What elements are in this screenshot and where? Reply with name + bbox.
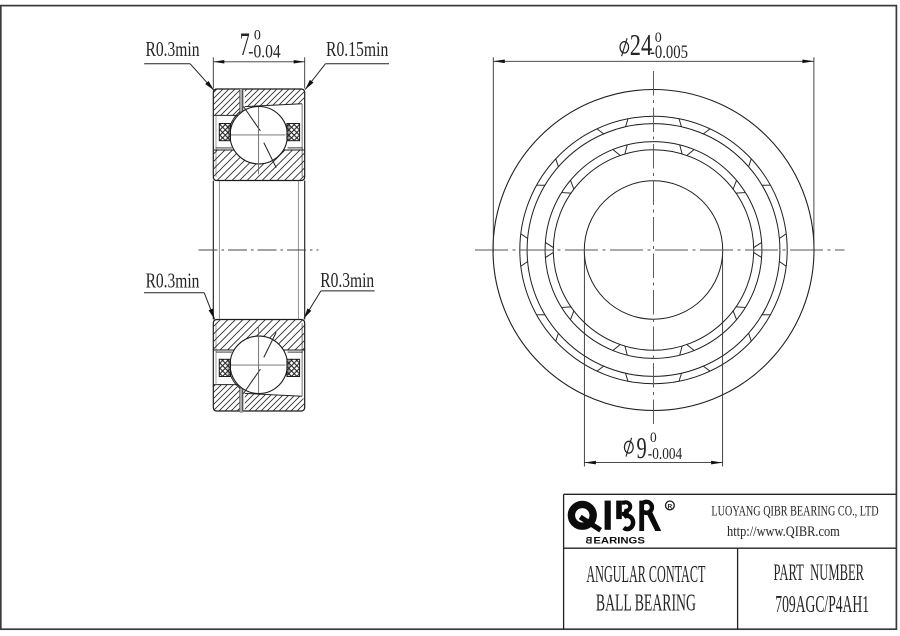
svg-text:9: 9 <box>637 431 647 465</box>
svg-text:LUOYANG QIBR BEARING CO., LTD: LUOYANG QIBR BEARING CO., LTD <box>711 503 878 519</box>
svg-text:R0.15min: R0.15min <box>326 37 388 61</box>
svg-text:R0.3min: R0.3min <box>146 269 200 293</box>
svg-text:R0.3min: R0.3min <box>320 268 374 292</box>
svg-text:R: R <box>668 504 673 511</box>
svg-text:EARINGS: EARINGS <box>593 536 645 546</box>
svg-text:-0.04: -0.04 <box>248 41 281 62</box>
svg-text:24: 24 <box>630 28 652 62</box>
svg-text:R0.3min: R0.3min <box>146 37 200 61</box>
svg-text:ANGULAR CONTACT: ANGULAR CONTACT <box>586 562 705 588</box>
svg-text:http://www.QIBR.com: http://www.QIBR.com <box>727 524 840 540</box>
svg-text:PART NUMBER: PART NUMBER <box>774 560 865 585</box>
svg-text:-0.005: -0.005 <box>650 43 688 63</box>
svg-text:B: B <box>585 536 592 546</box>
svg-text:BALL BEARING: BALL BEARING <box>596 590 696 616</box>
svg-text:-0.004: -0.004 <box>648 444 683 463</box>
svg-text:709AGC/P4AH1: 709AGC/P4AH1 <box>775 592 869 618</box>
